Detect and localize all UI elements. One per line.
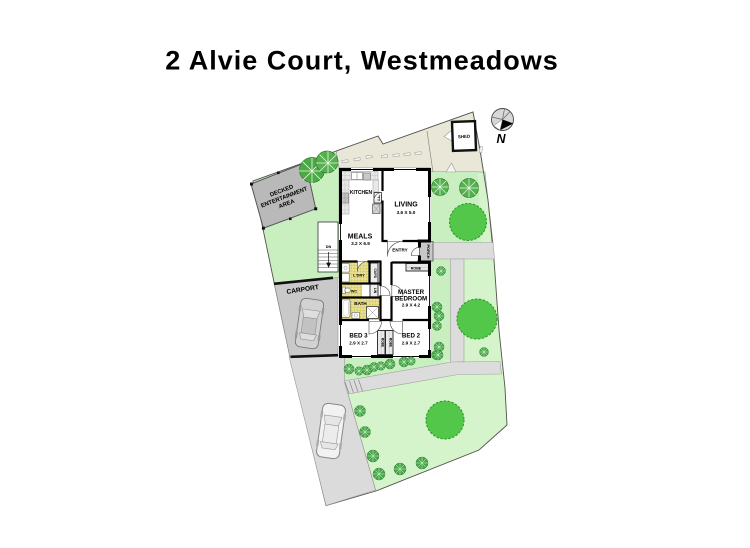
svg-text:2.9 X 4.2: 2.9 X 4.2 [402, 303, 421, 308]
svg-text:BATH: BATH [354, 301, 367, 306]
svg-text:ROBE: ROBE [380, 338, 384, 348]
svg-text:LIN: LIN [373, 288, 377, 294]
svg-text:ROBE: ROBE [388, 338, 392, 348]
svg-text:CUPD: CUPD [373, 268, 377, 278]
svg-text:3.2 X 6.9: 3.2 X 6.9 [351, 241, 370, 246]
svg-text:3.6 X 5.0: 3.6 X 5.0 [397, 210, 416, 215]
svg-text:LIVING: LIVING [394, 202, 418, 209]
svg-text:BEDROOM: BEDROOM [395, 296, 427, 303]
svg-text:N: N [496, 132, 506, 146]
svg-text:2.9 X 2.7: 2.9 X 2.7 [349, 341, 368, 346]
svg-text:DN: DN [326, 245, 332, 249]
svg-text:ROBE: ROBE [411, 266, 422, 270]
svg-text:ENTRY: ENTRY [392, 248, 407, 253]
svg-text:BED 2: BED 2 [402, 333, 421, 340]
svg-text:SHED: SHED [458, 134, 470, 139]
svg-text:PORCH: PORCH [426, 244, 431, 258]
svg-text:KITCHEN: KITCHEN [350, 190, 373, 196]
svg-text:2.9 X 2.7: 2.9 X 2.7 [402, 341, 421, 346]
svg-text:L'DRY: L'DRY [353, 273, 365, 278]
svg-text:2 Alvie Court, Westmeadows: 2 Alvie Court, Westmeadows [165, 46, 559, 76]
svg-text:WC: WC [351, 290, 357, 294]
svg-text:MEALS: MEALS [348, 234, 373, 241]
svg-text:BED 3: BED 3 [349, 333, 368, 340]
